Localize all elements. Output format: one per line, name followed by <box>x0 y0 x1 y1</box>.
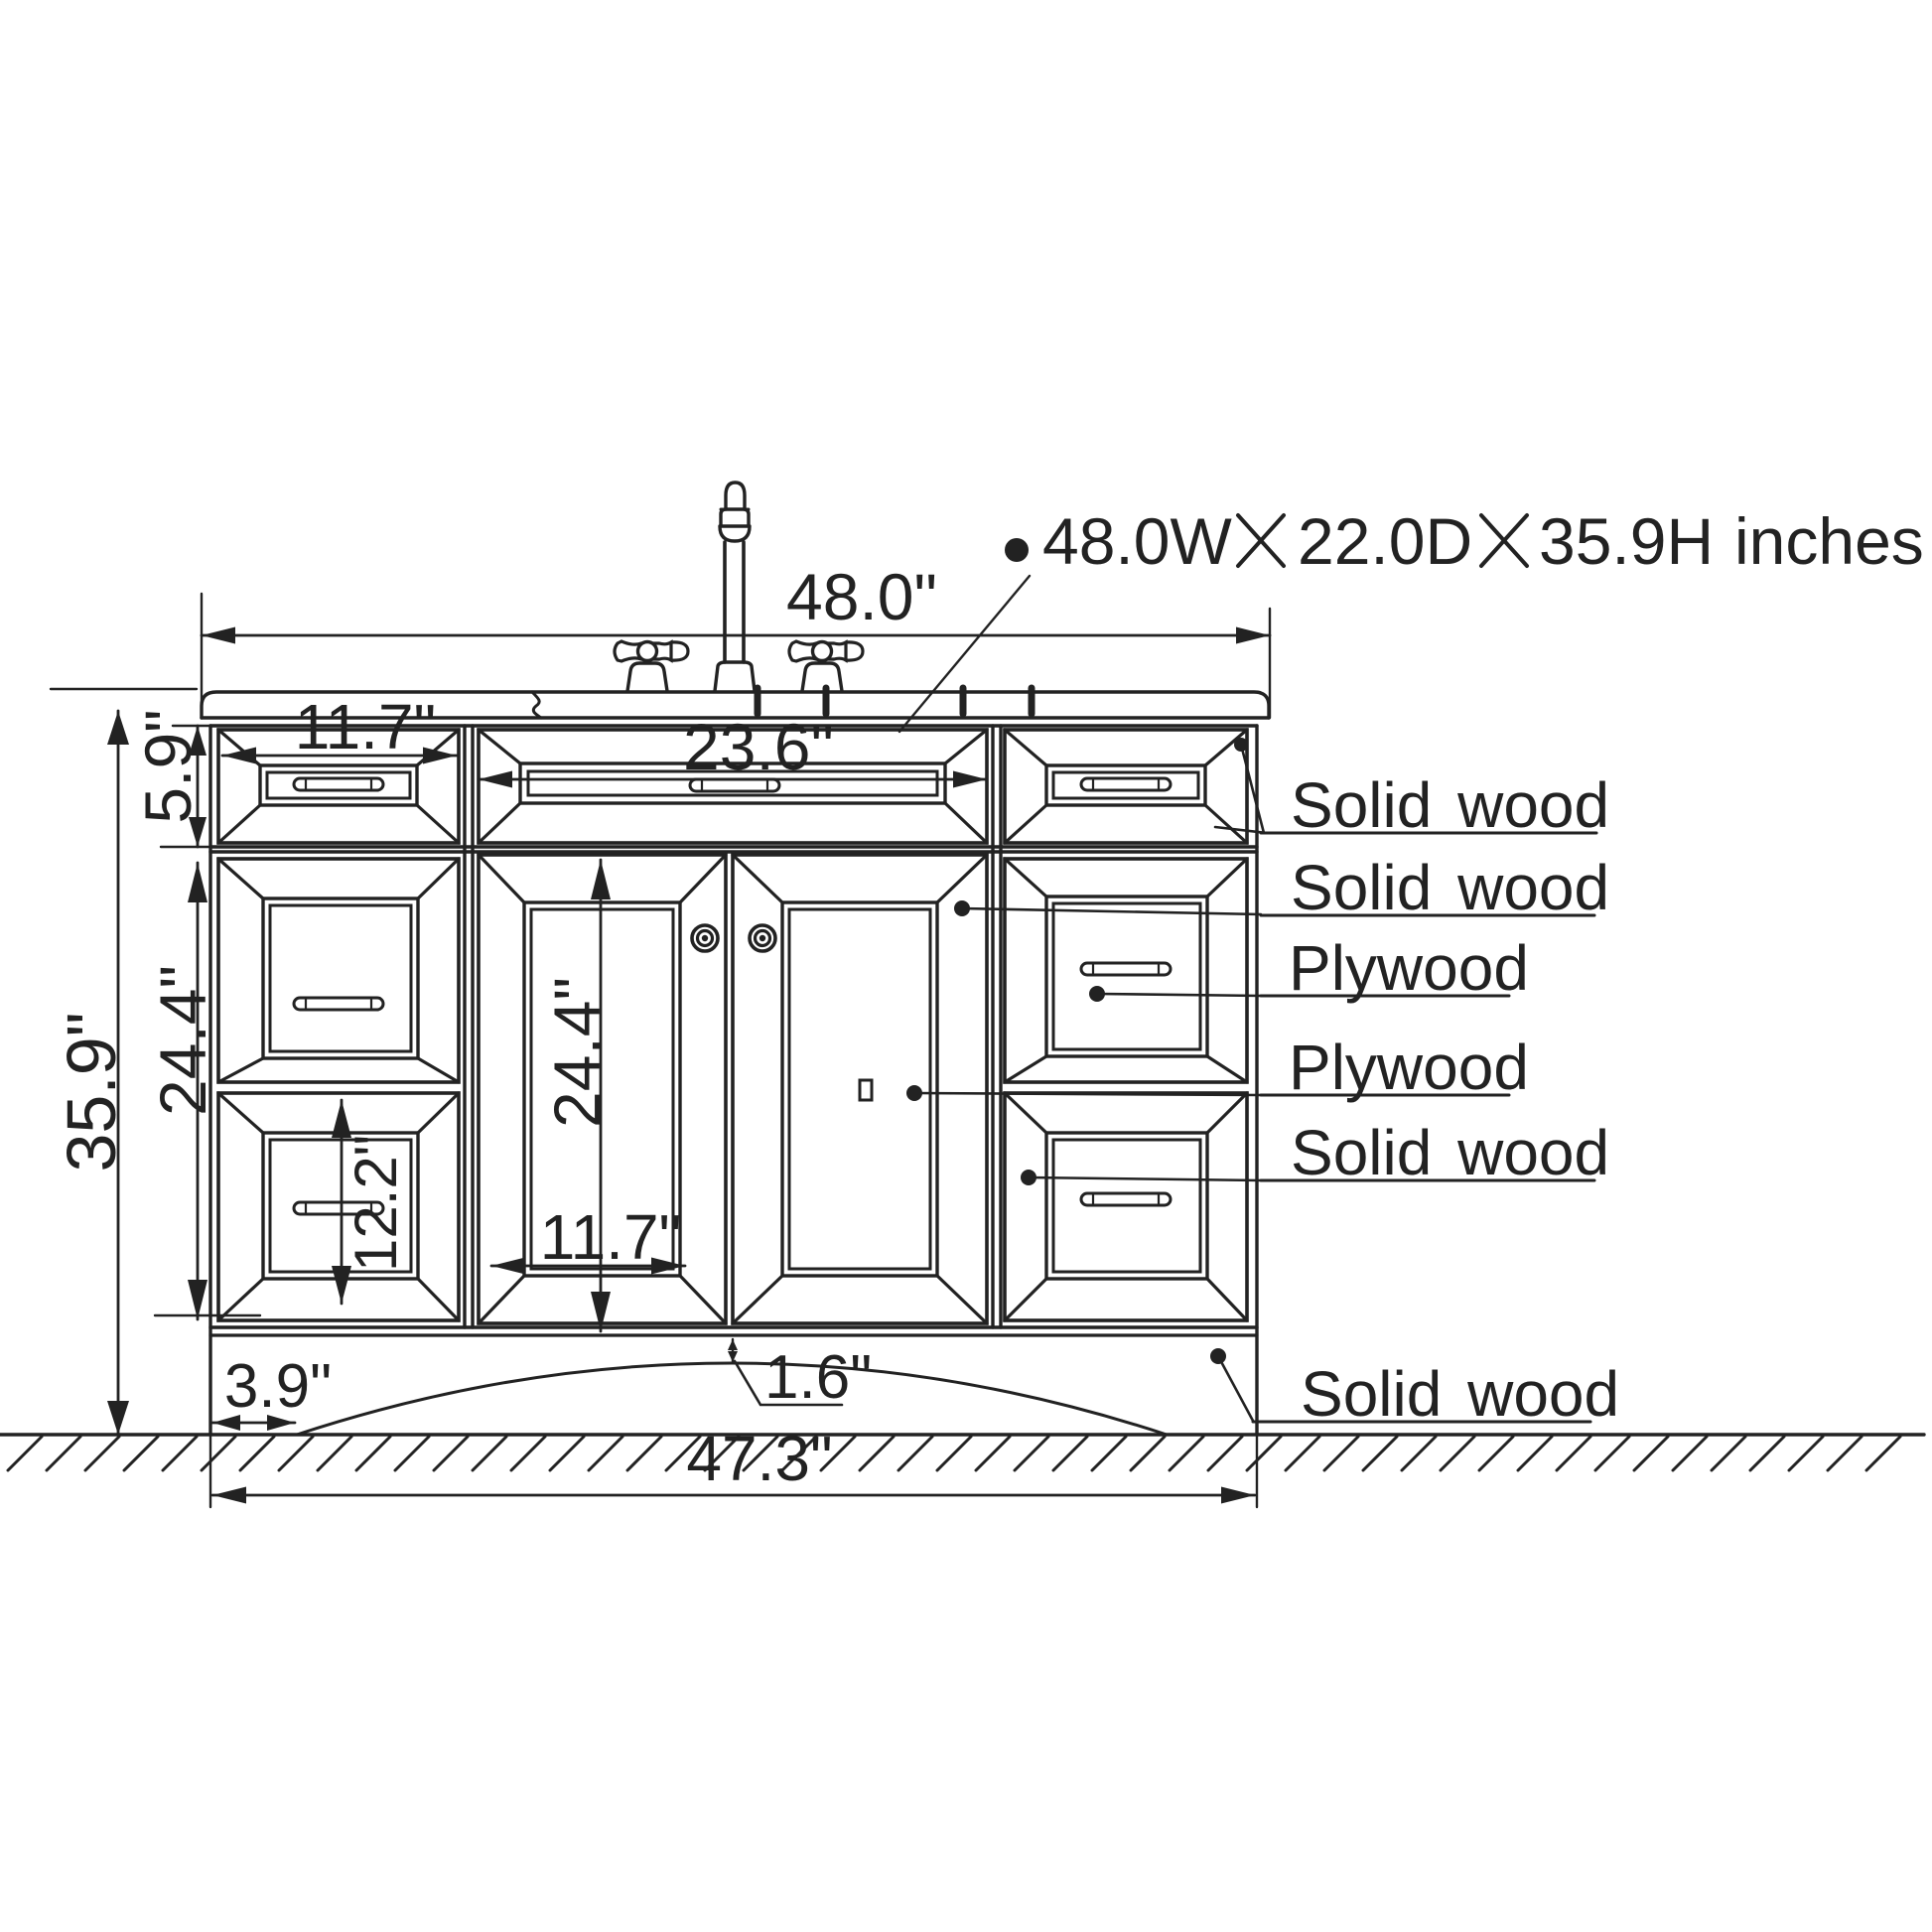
svg-text:11.7": 11.7" <box>295 691 437 762</box>
svg-text:Solid wood: Solid wood <box>1291 852 1609 923</box>
svg-text:48.0W: 48.0W <box>1042 504 1232 578</box>
svg-text:inches: inches <box>1734 504 1924 578</box>
svg-text:3.9": 3.9" <box>224 1352 332 1421</box>
svg-text:47.3": 47.3" <box>686 1423 832 1494</box>
svg-text:23.6": 23.6" <box>683 710 834 783</box>
svg-text:Solid wood: Solid wood <box>1291 769 1609 841</box>
svg-text:Plywood: Plywood <box>1289 932 1529 1004</box>
svg-text:35.9": 35.9" <box>53 1012 130 1172</box>
svg-text:Solid wood: Solid wood <box>1301 1358 1619 1430</box>
svg-text:24.4": 24.4" <box>146 965 219 1116</box>
svg-text:Plywood: Plywood <box>1289 1032 1529 1103</box>
svg-text:Solid wood: Solid wood <box>1291 1117 1609 1188</box>
svg-text:12.2": 12.2" <box>343 1135 409 1272</box>
svg-text:1.6": 1.6" <box>764 1343 872 1412</box>
svg-text:5.9": 5.9" <box>131 709 205 823</box>
svg-text:24.4": 24.4" <box>540 977 614 1128</box>
svg-text:22.0D: 22.0D <box>1298 504 1472 578</box>
svg-text:48.0": 48.0" <box>786 560 937 633</box>
svg-text:35.9H: 35.9H <box>1539 504 1714 578</box>
